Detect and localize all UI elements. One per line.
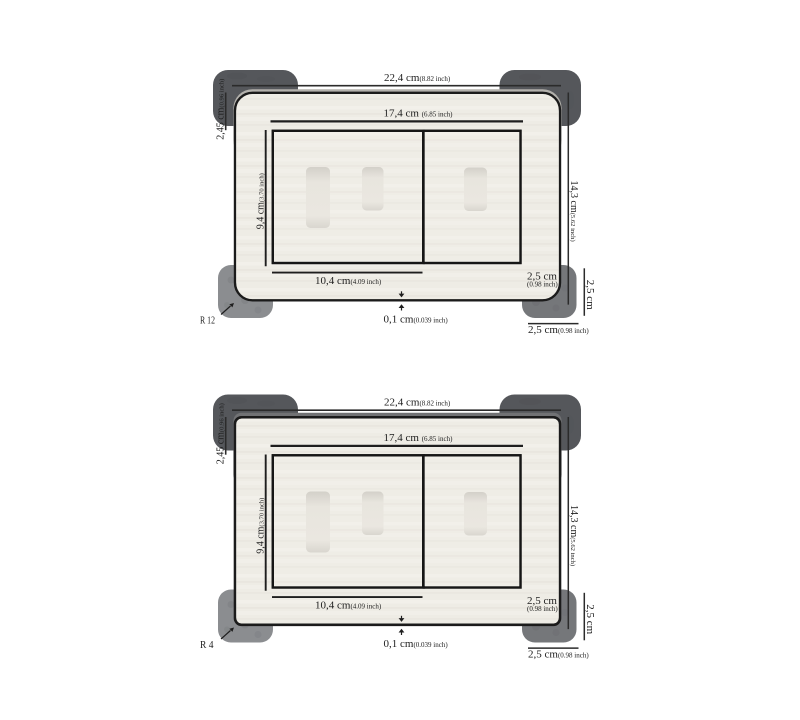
- svg-text:2,5 cm(0.98 inch): 2,5 cm(0.98 inch): [528, 649, 589, 661]
- svg-text:2,5 cm: 2,5 cm: [584, 604, 596, 634]
- svg-text:14,3 cm(5.62 inch): 14,3 cm(5.62 inch): [568, 505, 579, 566]
- svg-text:R 12: R 12: [200, 315, 215, 326]
- svg-text:0,1 cm(0.039 inch): 0,1 cm(0.039 inch): [384, 313, 449, 325]
- svg-text:22,4 cm(8.82 inch): 22,4 cm(8.82 inch): [384, 397, 451, 409]
- svg-text:14,3 cm(5.62 inch): 14,3 cm(5.62 inch): [568, 181, 579, 242]
- svg-text:R 4: R 4: [200, 640, 214, 651]
- svg-text:2,5 cm(0.98 inch): 2,5 cm(0.98 inch): [528, 324, 589, 336]
- svg-text:0,1 cm(0.039 inch): 0,1 cm(0.039 inch): [384, 638, 449, 650]
- svg-text:(0.98 inch): (0.98 inch): [527, 280, 558, 288]
- svg-text:(0.98 inch): (0.98 inch): [527, 605, 558, 613]
- svg-text:22,4 cm(8.82 inch): 22,4 cm(8.82 inch): [384, 72, 451, 84]
- svg-text:2,5 cm: 2,5 cm: [584, 280, 596, 310]
